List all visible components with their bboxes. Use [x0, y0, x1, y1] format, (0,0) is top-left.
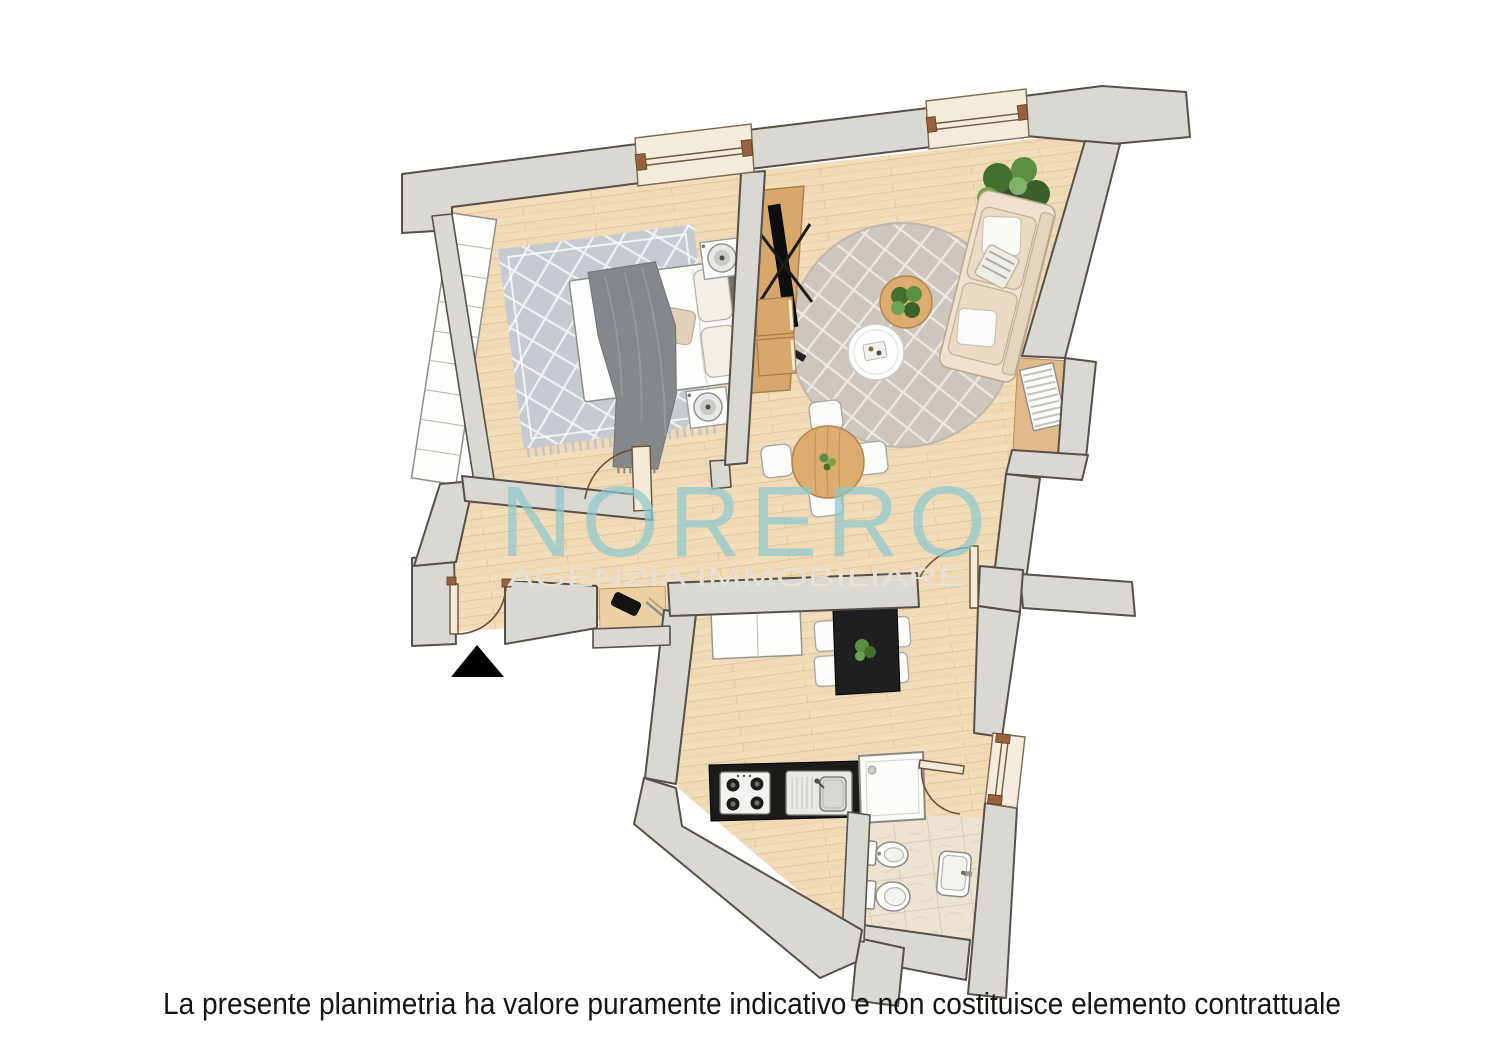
- coffee-table-white: [848, 324, 904, 380]
- shower-box: [859, 752, 925, 823]
- wall-niche-bottom: [593, 626, 670, 648]
- washbasin: [936, 851, 974, 898]
- watermark-subtitle: AGENZIA IMMOBILIARE: [507, 564, 965, 592]
- entrance-marker-triangle: [451, 645, 504, 677]
- wall-kitchen-right: [974, 606, 1020, 737]
- wall-right-arm: [1020, 574, 1135, 616]
- sink: [786, 771, 852, 815]
- tray: [863, 341, 887, 361]
- coffee-table-wood-with-plant: [880, 276, 932, 328]
- toilet: [861, 880, 911, 912]
- nightstand-with-lamp: [686, 387, 730, 429]
- gas-hob: [720, 772, 770, 814]
- bidet: [863, 840, 909, 868]
- floor-plan-canvas: NORERO AGENZIA IMMOBILIARE La presente p…: [0, 0, 1500, 1060]
- floor-plan-page: NORERO AGENZIA IMMOBILIARE La presente p…: [0, 0, 1500, 1060]
- kitchen-counter: [709, 761, 861, 821]
- wall-top-right: [1024, 86, 1190, 144]
- wall-niche-right: [1058, 358, 1096, 458]
- pillow: [956, 308, 997, 347]
- kitchen-cabinet: [711, 608, 802, 659]
- footer-disclaimer: La presente planimetria ha valore purame…: [163, 986, 1341, 1021]
- window-living: [926, 89, 1029, 149]
